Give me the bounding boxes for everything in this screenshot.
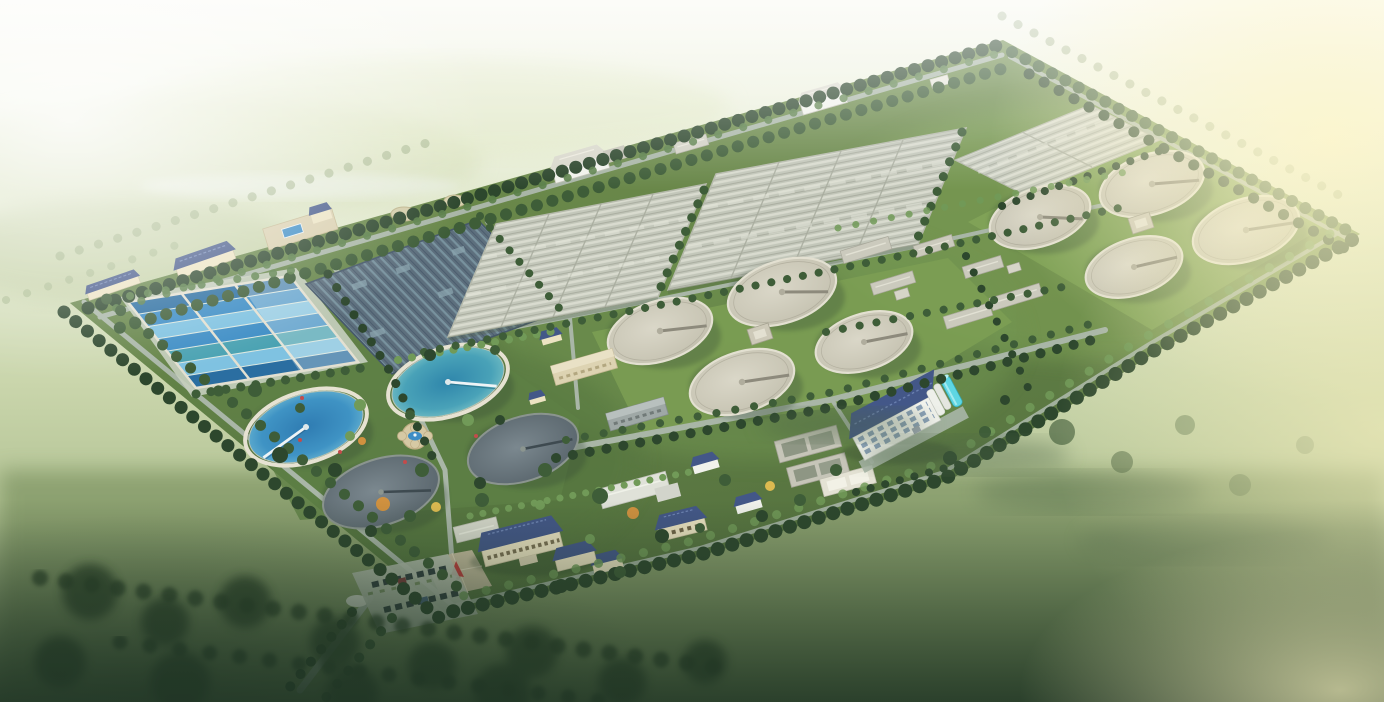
- fountain-spray: [413, 433, 416, 436]
- aerial-rendering: [0, 0, 1384, 702]
- treatment-plant-scene: [0, 0, 1384, 702]
